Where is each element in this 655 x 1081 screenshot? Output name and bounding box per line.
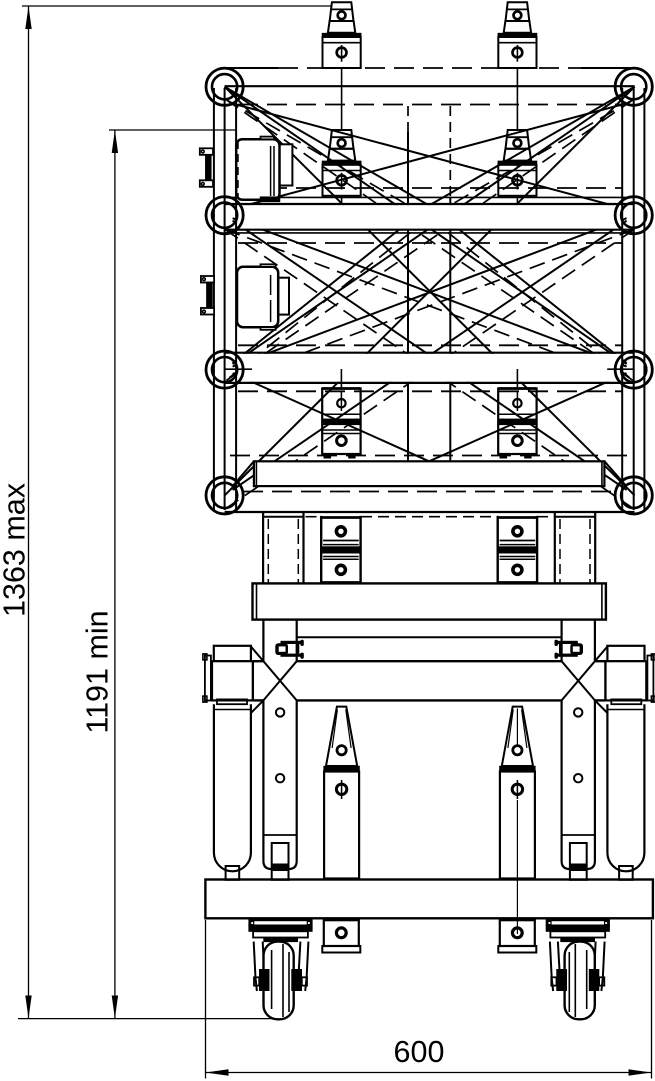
svg-text:1191 min: 1191 min xyxy=(81,610,115,733)
svg-text:1363 max: 1363 max xyxy=(0,483,32,617)
svg-text:600: 600 xyxy=(394,1035,445,1069)
